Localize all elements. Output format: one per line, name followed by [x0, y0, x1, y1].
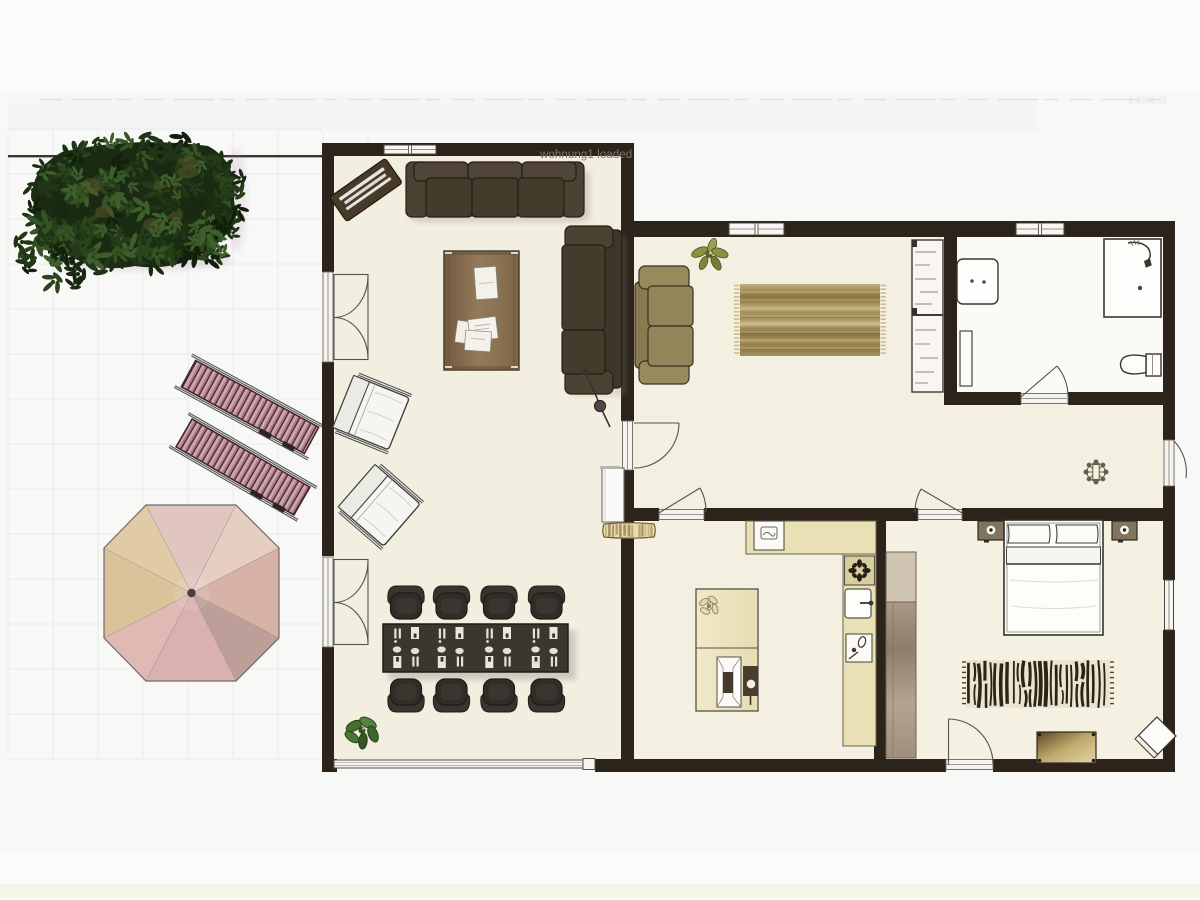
svg-text:1.1331.11: 1.1331.11	[1128, 95, 1167, 105]
svg-text:wohnung1 loaded: wohnung1 loaded	[539, 149, 632, 161]
